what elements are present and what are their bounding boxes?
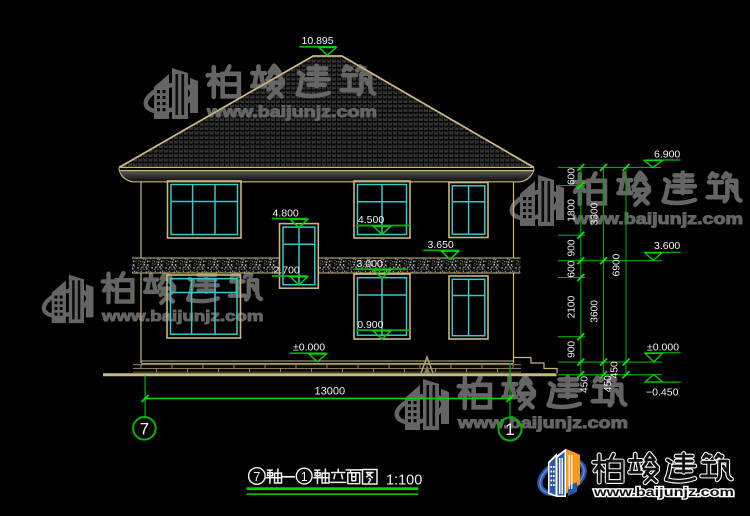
svg-text:600: 600 (567, 168, 578, 185)
svg-text:900: 900 (567, 239, 578, 256)
svg-text:4.500: 4.500 (358, 214, 384, 226)
svg-text:6.900: 6.900 (654, 149, 680, 161)
svg-text:1:100: 1:100 (386, 473, 422, 489)
svg-text:3.650: 3.650 (428, 239, 454, 251)
svg-text:450: 450 (580, 376, 591, 393)
svg-text:600: 600 (567, 260, 578, 277)
svg-text:1: 1 (301, 470, 308, 484)
svg-text:10.895: 10.895 (302, 35, 334, 47)
svg-text:3.600: 3.600 (654, 240, 680, 252)
svg-text:www.baijunjz.com: www.baijunjz.com (593, 485, 734, 499)
svg-text:±0.000: ±0.000 (647, 341, 679, 353)
svg-text:6900: 6900 (612, 253, 623, 276)
svg-text:0.900: 0.900 (357, 319, 383, 331)
svg-text:7: 7 (140, 419, 149, 438)
svg-text:3600: 3600 (589, 300, 600, 323)
svg-text:2.700: 2.700 (274, 264, 300, 276)
svg-text:1800: 1800 (567, 199, 578, 222)
svg-text:3300: 3300 (589, 202, 600, 225)
svg-text:±0.000: ±0.000 (293, 342, 325, 354)
svg-text:4.800: 4.800 (273, 207, 299, 219)
svg-text:13000: 13000 (315, 386, 346, 398)
svg-text:7: 7 (253, 470, 260, 484)
svg-text:450: 450 (610, 361, 621, 378)
svg-text:3.000: 3.000 (357, 258, 383, 270)
svg-text:1: 1 (505, 420, 514, 439)
svg-text:2100: 2100 (567, 295, 578, 318)
svg-text:900: 900 (567, 341, 578, 358)
svg-text:−0.450: −0.450 (646, 387, 679, 399)
